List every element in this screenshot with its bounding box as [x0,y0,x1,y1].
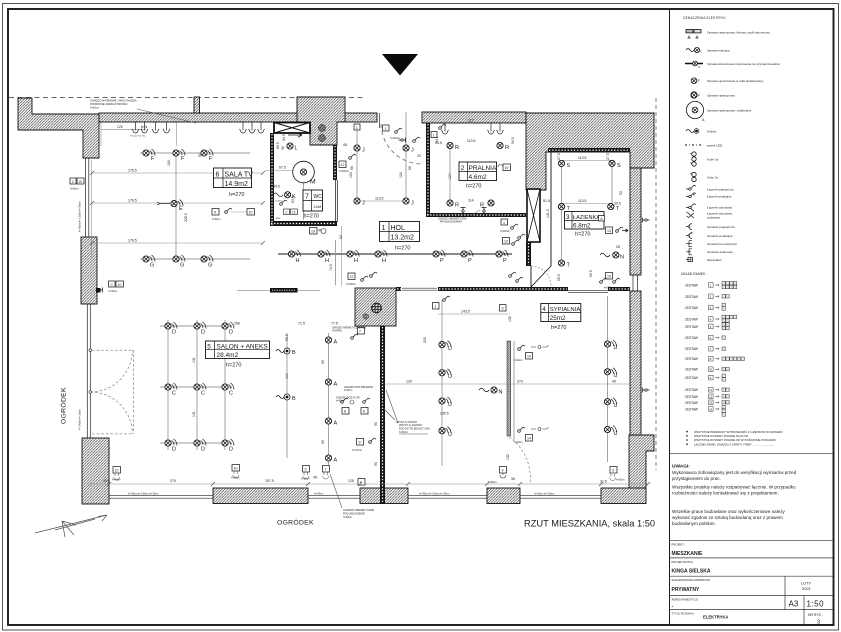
svg-text:120: 120 [117,125,123,129]
svg-text:9: 9 [359,441,361,445]
svg-text:przystąpieniem do prac.: przystąpieniem do prac. [672,476,721,481]
svg-text:h=30cm: h=30cm [336,401,344,403]
svg-text:TYTUŁ RYSUNKU:: TYTUŁ RYSUNKU: [672,611,695,615]
svg-text:B: B [292,350,296,356]
svg-text:1: 1 [503,221,505,225]
svg-text:MIESZKANIE: MIESZKANIE [672,551,704,557]
svg-text:1: 1 [433,134,435,138]
svg-text:9: 9 [305,468,307,472]
svg-text:C: C [201,391,205,397]
svg-text:176.5: 176.5 [128,199,137,203]
svg-text:2xM: 2xM [314,204,322,209]
svg-text:A: A [334,340,338,346]
svg-text:74.5: 74.5 [329,264,333,271]
svg-text:Oprawa nastropowa - plafoniera: Oprawa nastropowa - plafoniera [707,109,751,113]
svg-text:228.5: 228.5 [184,213,188,222]
svg-text:h=130cm: h=130cm [604,287,614,290]
svg-text:A: A [334,421,338,427]
svg-text:h= 90cm h= 150cm h= 30cm: h= 90cm h= 150cm h= 30cm [419,492,449,495]
svg-text:45: 45 [343,143,347,147]
svg-text:157.5: 157.5 [265,479,274,483]
svg-text:34.5: 34.5 [282,134,286,141]
svg-text:h=175cm: h=175cm [352,449,362,452]
svg-text:90: 90 [374,462,378,466]
svg-text:Łącznik schodowy: Łącznik schodowy [707,206,733,210]
svg-text:h=270: h=270 [226,363,241,369]
svg-text:podwójny: podwójny [707,216,721,220]
svg-text:90: 90 [321,360,325,364]
svg-text:HOL: HOL [391,225,406,232]
svg-text:143.5: 143.5 [461,310,470,314]
svg-text:10: 10 [115,469,119,473]
svg-text:U: U [614,431,618,437]
svg-text:ZESTAW: ZESTAW [685,347,698,351]
svg-text:14: 14 [527,355,531,359]
svg-text:6: 6 [363,410,365,414]
svg-text:25m2: 25m2 [550,315,566,322]
svg-text:Oprawa nastropowa, liniowa, pr: Oprawa nastropowa, liniowa, profil alumi… [707,31,770,35]
svg-text:27.5: 27.5 [557,153,561,160]
svg-text:12: 12 [350,275,354,279]
svg-text:Kóler 3x: Kóler 3x [707,158,719,162]
svg-text:h=30cm: h=30cm [212,218,221,221]
svg-text:36: 36 [511,477,515,481]
svg-text:30.5: 30.5 [273,185,280,189]
svg-text:J: J [362,201,365,207]
svg-text:176.5: 176.5 [128,169,137,173]
svg-text:373: 373 [517,380,523,384]
svg-text:h=30cm: h=30cm [90,107,99,110]
svg-text:ŁĄCZNIKI,RAMKI, GNIAZDA Z OFER: ŁĄCZNIKI,RAMKI, GNIAZDA Z OFERTY FIRMY .… [694,442,775,446]
svg-text:Kóler 2x: Kóler 2x [707,176,719,180]
svg-text:6.8m2: 6.8m2 [573,223,591,230]
svg-text:7: 7 [325,468,327,472]
svg-text:OKAPNIC: OKAPNIC [332,330,343,333]
svg-text:75x (1) 75x 75x: 75x (1) 75x 75x [130,136,146,138]
svg-text:ZESTAW: ZESTAW [685,401,698,405]
svg-text:A3: A3 [789,600,799,609]
svg-text:SALA TV: SALA TV [225,172,254,179]
svg-text:h=130cm: h=130cm [339,170,349,173]
svg-text:G: G [180,263,184,269]
svg-text:WSZYSTKIE WYMIARY PODANE OD WY: WSZYSTKIE WYMIARY PODANE OD WYKOŃCZONEJ … [694,438,776,442]
svg-text:1: 1 [385,127,387,131]
svg-text:6: 6 [344,410,346,414]
svg-text:ELEKTRYKA: ELEKTRYKA [703,615,728,620]
svg-text:12: 12 [504,240,508,244]
svg-text:U: U [614,373,618,379]
svg-text:F: F [698,79,700,83]
svg-text:ZESTAW: ZESTAW [685,325,698,329]
svg-text:10: 10 [249,211,253,215]
svg-text:164: 164 [167,160,171,166]
svg-text:208: 208 [234,322,240,326]
svg-text:72.5: 72.5 [298,322,305,326]
svg-text:113.5: 113.5 [578,199,587,203]
svg-text:ZESTAW: ZESTAW [685,357,698,361]
svg-text:125: 125 [348,479,354,483]
svg-text:h=270: h=270 [304,214,319,220]
svg-text:C: C [229,391,233,397]
svg-text:20: 20 [417,154,421,158]
svg-text:13: 13 [709,401,712,405]
svg-text:Kinkiet: Kinkiet [707,130,716,134]
svg-text:WSZYSTKIE WYMIARY PODANE SĄ W: WSZYSTKIE WYMIARY PODANE SĄ W OSI [694,434,748,438]
svg-text:1: 1 [356,126,358,130]
svg-text:114: 114 [468,199,474,203]
svg-text:Wentylator: Wentylator [707,258,722,262]
svg-text:H: H [296,258,300,264]
svg-text:D: D [229,330,233,336]
svg-text:KINGA SIELSKA: KINGA SIELSKA [672,568,711,574]
svg-text:F: F [698,94,700,98]
svg-text:pasek LED: pasek LED [707,144,723,148]
svg-text:A: A [334,458,338,464]
svg-text:ŁAZIENKA: ŁAZIENKA [573,215,600,221]
svg-text:9: 9 [612,469,614,473]
svg-text:GNIAZDO POD PLYTE: GNIAZDO POD PLYTE [336,397,360,400]
svg-text:Wszystkie projekty należy rozp: Wszystkie projekty należy rozpatrywać łą… [672,485,796,490]
svg-text:h= 90cm h= 150cm: h= 90cm h= 150cm [534,492,554,495]
svg-text:GNIAZDO HERMETYCZNE: GNIAZDO HERMETYCZNE [438,218,467,221]
svg-text:h=270: h=270 [229,192,244,198]
svg-text:U: U [448,346,452,352]
svg-text:13.2m2: 13.2m2 [391,235,414,242]
svg-text:H: H [382,258,386,264]
svg-text:Wykonawca zobowiązany jest do: Wykonawca zobowiązany jest do weryfikacj… [672,470,797,475]
svg-text:h=30cm: h=30cm [70,188,79,191]
svg-text:S: S [617,163,621,169]
svg-text:G: G [208,263,212,269]
svg-text:90: 90 [321,440,325,444]
svg-text:NR RYS.: NR RYS. [808,613,822,617]
svg-text:30: 30 [281,146,285,150]
svg-text:PRALKA/SUSZARKA: PRALKA/SUSZARKA [440,221,463,224]
svg-text:31.5: 31.5 [600,480,607,484]
svg-text:12: 12 [341,163,345,167]
svg-text:Oprawa kierunkowa montowana na: Oprawa kierunkowa montowana na szynoprze… [707,62,780,66]
svg-text:9: 9 [214,211,216,215]
svg-text:ZESTAW: ZESTAW [685,295,698,299]
svg-text:U: U [614,345,618,351]
svg-text:h=30cm: h=30cm [109,290,118,293]
svg-text:h= 90cm h= 150cm h= 30cm: h= 90cm h= 150cm h= 30cm [128,492,158,495]
svg-text:43.5: 43.5 [103,479,110,483]
svg-text:WPUST 2) FAZOWY: WPUST 2) FAZOWY [396,421,418,424]
svg-text:OGRÓDEK: OGRÓDEK [277,518,314,527]
svg-text:ZESTAW: ZESTAW [685,388,698,392]
svg-text:RZUT MIESZKANIA, skala 1:50: RZUT MIESZKANIA, skala 1:50 [524,519,655,529]
svg-text:N: N [499,390,503,396]
svg-text:ZESTAW: ZESTAW [685,336,698,340]
svg-text:Gniazdo antenowe: Gniazdo antenowe [707,250,733,254]
svg-text:56: 56 [408,166,412,170]
svg-text:h= 90cm h= 100cm h= 90cm: h= 90cm h= 100cm h= 90cm [79,202,82,232]
svg-text:OGRÓDEK: OGRÓDEK [59,387,68,424]
svg-text:1: 1 [382,225,386,232]
svg-text:56: 56 [350,166,354,170]
svg-text:D: D [172,447,176,453]
svg-text:90: 90 [374,422,378,426]
svg-text:15: 15 [292,211,296,215]
svg-text:131: 131 [192,357,196,363]
svg-text:h= 90cm: h= 90cm [314,492,323,495]
svg-text:ZESTAW: ZESTAW [685,376,698,380]
svg-text:H: H [354,258,358,264]
svg-text:28.4m2: 28.4m2 [217,352,239,359]
svg-text:69.5: 69.5 [276,142,280,149]
svg-text:WC: WC [314,194,323,200]
svg-text:U: U [448,374,452,380]
svg-text:13: 13 [607,229,611,233]
svg-text:14.9m2: 14.9m2 [225,181,248,188]
svg-text:45: 45 [313,476,317,480]
svg-text:U: U [448,432,452,438]
svg-text:12: 12 [709,395,712,399]
svg-text:Łącznik podwójny: Łącznik podwójny [707,195,732,199]
svg-text:131.5: 131.5 [546,209,550,218]
svg-text:P: P [468,258,472,264]
svg-text:Gniazdo podwójne: Gniazdo podwójne [707,234,733,238]
svg-text:10: 10 [234,467,238,471]
svg-text:GNIAZDO HERMETYCZNE POD: GNIAZDO HERMETYCZNE POD [332,327,367,330]
svg-text:94.5: 94.5 [511,137,515,144]
svg-text:14: 14 [527,437,531,441]
svg-text:19: 19 [311,230,315,234]
svg-text:LUTY: LUTY [801,581,812,586]
svg-text:R: R [455,145,459,151]
svg-text:50.5: 50.5 [557,274,561,281]
svg-text:113.5: 113.5 [375,197,384,201]
svg-text:2: 2 [72,180,74,184]
svg-text:E: E [179,206,183,212]
svg-text:ZLECENIODAWCA/INWESTOR: ZLECENIODAWCA/INWESTOR [672,578,711,582]
svg-text:L: L [295,146,298,152]
svg-text:9: 9 [502,307,504,311]
svg-text:2021: 2021 [802,586,812,591]
svg-text:Gniazdo pojedyncze: Gniazdo pojedyncze [707,225,735,229]
svg-text:113.5: 113.5 [578,156,587,160]
svg-text:PROJEKT:: PROJEKT: [672,542,685,546]
svg-text:14: 14 [709,407,712,411]
svg-text:132: 132 [506,454,510,460]
svg-text:Oprawa opuszczana w sufit podw: Oprawa opuszczana w sufit podwieszany [707,79,764,83]
svg-text:UKŁAD RAMEK :: UKŁAD RAMEK : [681,272,707,276]
svg-text:49: 49 [612,380,616,384]
svg-text:G: G [150,263,154,269]
svg-text:Oprawa nastropowa: Oprawa nastropowa [707,94,735,98]
svg-text:27.5: 27.5 [606,153,610,160]
svg-text:h=40cm: h=40cm [514,441,523,444]
svg-text:P: P [440,258,444,264]
svg-text:h=30cm: h=30cm [275,201,283,203]
svg-text:h=130cm: h=130cm [500,230,510,233]
svg-text:h=270: h=270 [466,184,481,190]
svg-text:124: 124 [399,172,403,178]
svg-text:Wszelkie prace budowlane oraz: Wszelkie prace budowlane oraz wykończeni… [672,509,786,514]
svg-text:113.5: 113.5 [467,139,476,143]
svg-text:PROJEKTANTKA:: PROJEKTANTKA: [672,560,694,564]
svg-text:67.5: 67.5 [279,166,286,170]
svg-text:62: 62 [339,235,343,239]
svg-text:S: S [567,163,571,169]
svg-text:10: 10 [118,283,122,287]
svg-text:K: K [292,194,296,200]
svg-text:D: D [201,330,205,336]
svg-text:h=60cm: h=60cm [488,481,497,484]
svg-text:280.5: 280.5 [440,412,449,416]
svg-text:131: 131 [192,411,196,417]
svg-text:176.5: 176.5 [128,239,137,243]
svg-text:h=30cm: h=30cm [344,390,352,392]
svg-text:1: 1 [435,305,437,309]
svg-text:J: J [411,148,414,154]
svg-text:15: 15 [607,275,611,279]
svg-text:wykonać zgodnie ze sztuką budo: wykonać zgodnie ze sztuką budowlaną oraz… [672,515,783,520]
svg-text:U: U [448,402,452,408]
svg-text:D: D [172,330,176,336]
svg-text:h=30cm: h=30cm [112,479,121,482]
svg-text:ZESTAW: ZESTAW [685,283,698,287]
svg-text:h=60cm: h=60cm [343,516,352,519]
svg-text:h=30cm: h=30cm [399,431,408,434]
svg-text:SYPIALNIA: SYPIALNIA [550,307,581,313]
svg-text:h=15cm: h=15cm [231,477,240,480]
svg-text:SALON + ANEKS: SALON + ANEKS [217,343,269,350]
svg-text:A: A [334,382,338,388]
svg-text:ZESTAW: ZESTAW [685,407,698,411]
svg-text:ZESTAW: ZESTAW [685,368,698,372]
svg-text:ZESTAW: ZESTAW [685,317,698,321]
svg-text:132: 132 [508,316,512,322]
svg-text:J: J [411,201,414,207]
svg-text:Łącznik pojedynczy: Łącznik pojedynczy [707,188,734,192]
svg-text:129: 129 [406,380,412,384]
svg-text:h= 240cm h= 30cm: h= 240cm h= 30cm [79,410,82,430]
svg-text:h=15cm: h=15cm [301,478,310,481]
svg-text:117: 117 [468,119,474,123]
svg-text:19: 19 [505,166,509,170]
svg-text:124: 124 [349,172,353,178]
svg-text:C: C [172,391,176,397]
svg-text:9: 9 [502,469,504,473]
svg-text:U: U [614,403,618,409]
svg-text:Oprawa wisząca: Oprawa wisząca [707,49,730,53]
svg-text:M: M [310,179,316,186]
svg-text:220: 220 [423,337,427,343]
svg-text:h=270: h=270 [395,246,410,252]
svg-text:39.5: 39.5 [614,202,621,206]
svg-text:C: C [110,283,113,287]
svg-text:69.5: 69.5 [589,270,593,277]
svg-text:ZESTAW: ZESTAW [685,306,698,310]
svg-text:D: D [229,447,233,453]
svg-text:budowlanym polskim.: budowlanym polskim. [672,521,716,526]
svg-text:h=130cm: h=130cm [346,283,356,286]
svg-text:OZNACZENIA ELEKTRYKI: OZNACZENIA ELEKTRYKI [683,16,726,20]
svg-text:92: 92 [619,191,623,195]
svg-text:5: 5 [207,343,211,350]
svg-text:6: 6 [216,172,220,179]
svg-text:D: D [201,447,205,453]
svg-text:PRYWATNY: PRYWATNY [672,587,700,593]
svg-text:B: B [292,396,296,402]
svg-text:Gniazdo hermetyczne: Gniazdo hermetyczne [707,242,737,246]
svg-text:R: R [455,203,459,209]
svg-text:51.5: 51.5 [543,199,550,203]
svg-text:2: 2 [461,165,465,172]
svg-text:3: 3 [817,620,820,626]
svg-text:10: 10 [78,180,82,184]
svg-text:h=270: h=270 [551,325,566,331]
svg-text:PRALNIA: PRALNIA [469,165,497,172]
svg-text:77.5: 77.5 [331,322,338,326]
svg-text:h=130cm: h=130cm [390,137,400,140]
svg-text:h=40cm: h=40cm [514,359,523,362]
svg-text:UWAGI:: UWAGI: [672,464,690,470]
svg-text:7: 7 [305,194,309,201]
svg-text:7: 7 [359,330,361,334]
svg-text:h=270: h=270 [575,232,590,238]
svg-text:ZESTAW: ZESTAW [685,395,698,399]
svg-text:h=30cm: h=30cm [616,479,625,482]
svg-text:J: J [362,148,365,154]
svg-text:28: 28 [616,245,620,249]
svg-text:P: P [503,258,507,264]
svg-text:3: 3 [566,214,570,221]
svg-text:270: 270 [170,479,176,483]
svg-text:N: N [620,255,624,261]
svg-text:rozbieżności należy kontaktowa: rozbieżności należy kontaktować się z pr… [672,491,779,496]
svg-text:4.6m2: 4.6m2 [469,174,487,181]
svg-text:R: R [505,145,509,151]
svg-text:1:50: 1:50 [807,600,825,609]
svg-text:4: 4 [542,306,546,313]
svg-text:H: H [325,258,329,264]
svg-text:GNIAZDO POD PIEKARNIK: GNIAZDO POD PIEKARNIK [344,386,373,389]
svg-text:ADRES INWESTYCJI:: ADRES INWESTYCJI: [672,597,699,601]
svg-text:10: 10 [709,368,712,372]
